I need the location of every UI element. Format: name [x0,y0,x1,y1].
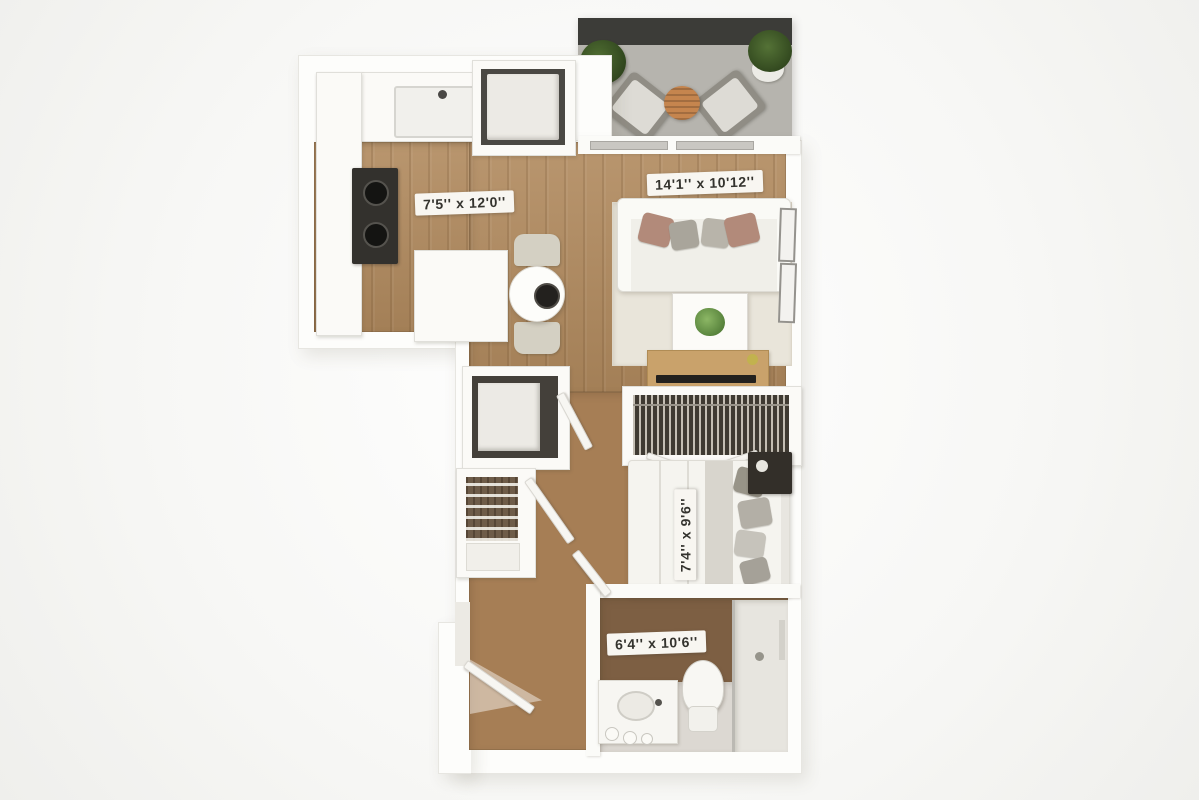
linen-drawer [466,543,520,571]
bed-throw-blanket [705,461,733,595]
bedroom-dimension-label: 7'4'' x 9'6'' [674,490,696,581]
closet-rod-icon [633,404,789,406]
vanity [598,680,678,744]
wall-frame-lower [778,263,797,324]
duvet-fold [659,461,661,595]
burner-icon [363,222,389,248]
window-pane-left [590,141,668,150]
coffee-table [672,293,748,353]
stove [352,168,398,264]
bed-pillow [737,496,773,529]
bed-pillow [739,556,772,586]
dining-chair-top [514,234,560,266]
tv-console [647,350,769,388]
washer-unit [487,74,559,140]
storage-closet [462,366,570,470]
bathroom-top-wall [588,584,800,598]
living-room-dimension-label: 14'1'' x 10'12'' [647,170,763,196]
toiletry-icon [641,733,653,745]
toiletry-icon [605,727,619,741]
lamp-icon [756,460,768,472]
shower-floor [735,600,788,752]
balcony-table-icon [664,86,700,120]
kitchen-island [414,250,508,342]
entry-door-recess [455,602,470,666]
linen-shelves [466,477,518,541]
console-decor [747,354,758,365]
burner-icon [363,180,389,206]
kitchen-dimension-label: 7'5'' x 12'0'' [415,190,515,215]
tv-icon [656,375,756,383]
dining-chair-bottom [514,322,560,354]
sofa-arm-left [618,199,631,291]
floorplan-screenshot: { "floorplan": { "type": "studio-apartme… [0,0,1199,800]
dining-table [509,266,565,322]
table-bowl-icon [534,283,560,309]
bathroom-dimension-label: 6'4'' x 10'6'' [607,630,707,655]
nightstand [748,452,792,494]
window-pane-right [676,141,754,150]
linen-closet [456,468,536,578]
bed-pillow [733,529,766,559]
toilet-base [688,706,718,732]
wall-frame-upper [778,208,797,263]
faucet-icon [655,699,662,706]
storage-unit [478,383,540,451]
wardrobe-interior [633,395,789,455]
sofa-pillow-tan-right [723,212,761,248]
vanity-sink-icon [617,691,655,721]
showerhead-icon [755,652,764,661]
toiletry-icon [623,731,637,745]
washer-closet [472,60,576,156]
sofa-pillow-gray-left [668,219,700,251]
shower-shelf [779,620,785,660]
balcony-plant-right-icon [748,30,792,72]
sofa [617,198,791,292]
faucet-icon [438,90,447,99]
coffee-table-plant-icon [695,308,725,336]
